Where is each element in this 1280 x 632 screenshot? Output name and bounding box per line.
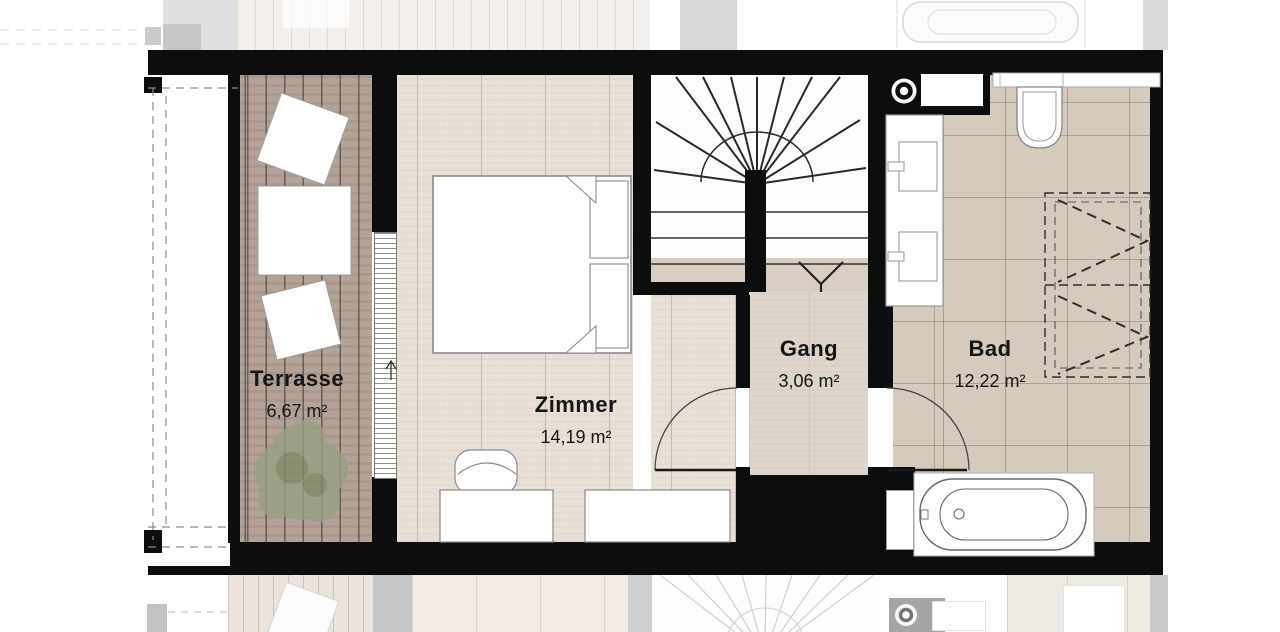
room-label-zimmer: Zimmer 14,19 m² <box>535 392 617 448</box>
room-area: 6,67 m² <box>250 401 344 422</box>
ghost-wall-band <box>628 575 652 632</box>
room-zimmer-floor-extension <box>651 295 736 542</box>
wall-window-lower <box>372 477 397 552</box>
ghost-stairs <box>652 575 880 632</box>
ghost-wall-band <box>163 24 201 50</box>
wall-lower-ghost-band <box>148 566 1163 575</box>
lower-floor-ghost <box>0 575 1280 632</box>
upper-floor-ghost <box>0 0 1280 50</box>
wall-bad-bottom <box>884 542 1163 566</box>
balcony-dashed-edges <box>148 88 238 547</box>
room-area: 14,19 m² <box>535 427 617 448</box>
ghost-deck <box>228 575 373 632</box>
ghost-wall-band <box>680 0 737 50</box>
terrace-window <box>374 232 397 479</box>
wall-zimmer-stairs <box>633 75 651 295</box>
wall-post-bottom-left <box>144 530 162 553</box>
ghost-wall-band <box>373 575 412 632</box>
wall-bad-west-upper <box>868 75 893 388</box>
ghost-post <box>145 27 161 45</box>
wall-right <box>1150 50 1163 566</box>
wall-top <box>148 50 1163 75</box>
ghost-post <box>147 604 167 632</box>
room-name: Zimmer <box>535 392 617 418</box>
wall-stub-top-left <box>144 77 162 93</box>
floor-plan-canvas: Terrasse 6,67 m² Zimmer 14,19 m² Gang 3,… <box>0 0 1280 632</box>
wall-gang-west-lower <box>736 467 750 566</box>
room-area: 3,06 m² <box>778 371 839 392</box>
room-label-terrasse: Terrasse 6,67 m² <box>250 366 344 422</box>
room-area: 12,22 m² <box>954 371 1025 392</box>
room-name: Terrasse <box>250 366 344 392</box>
room-bad-floor <box>893 75 1150 542</box>
ghost-table <box>283 0 349 28</box>
wall-bottom-left <box>230 542 755 566</box>
ghost-vanity <box>1063 585 1125 632</box>
ghost-wall-band <box>1143 0 1168 50</box>
room-label-bad: Bad 12,22 m² <box>954 336 1025 392</box>
room-name: Bad <box>954 336 1025 362</box>
ventilation-shaft <box>878 68 990 115</box>
ghost-room <box>412 575 628 632</box>
room-name: Gang <box>778 336 839 362</box>
wall-window-upper <box>372 75 397 232</box>
room-zimmer-floor <box>397 75 633 542</box>
wall-terrace-left <box>228 75 240 543</box>
ghost-box <box>932 601 986 631</box>
ghost-wall-band <box>1150 575 1168 632</box>
wall-gang-west-upper <box>736 295 750 388</box>
wall-niche-window <box>886 490 914 550</box>
wall-stairs-bottom <box>633 282 749 295</box>
room-label-gang: Gang 3,06 m² <box>778 336 839 392</box>
wall-gang-south <box>749 475 870 566</box>
room-terrasse-floor <box>240 75 372 555</box>
